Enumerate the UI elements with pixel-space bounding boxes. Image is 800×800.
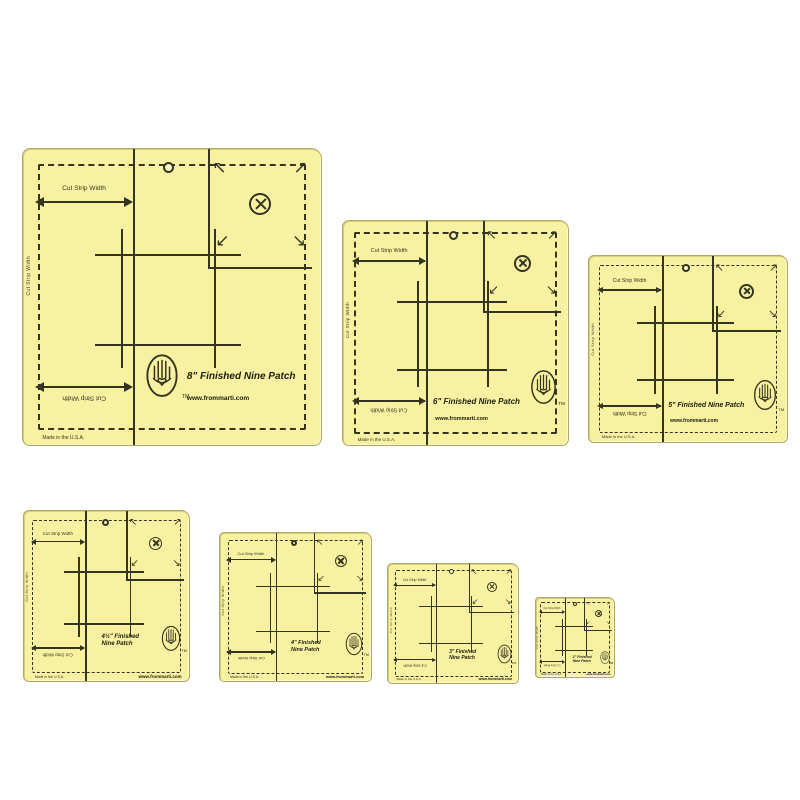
hang-hole-icon [449, 231, 458, 240]
template-title-line1: 6" Finished Nine Patch [433, 397, 520, 406]
cut-strip-width-arrow-top [394, 585, 435, 586]
trademark-text: TM [364, 653, 369, 657]
cut-strip-width-arrow-top [32, 541, 84, 543]
side-ruler-text: Cut Strip Width [591, 323, 595, 356]
cut-strip-width-label-top: Cut Strip Width [354, 249, 424, 255]
made-in-text: Made in the U.S.A. [35, 675, 64, 679]
nine-patch-grid-line-horizontal-2 [256, 631, 330, 633]
hand-logo-icon: TM [497, 644, 512, 664]
template-title-line2: Nine Patch [102, 641, 140, 648]
corner-arrow-sw-icon: ↙ [317, 576, 325, 583]
trademark-text: TM [779, 407, 785, 412]
side-ruler-text: Cut Strip Width [26, 572, 30, 602]
cut-strip-width-arrow-bottom [32, 647, 84, 649]
template-title-line2: Nine Patch [291, 647, 321, 653]
trademark-text: TM [512, 661, 516, 665]
corner-arrow-nw-icon: ↖ [715, 264, 724, 273]
hang-hole-icon [102, 519, 109, 526]
hand-logo-icon: TM [753, 379, 777, 411]
strip-seam-line-vertical [436, 564, 437, 683]
template-title-line2: Nine Patch [573, 659, 592, 663]
template-5-inch-nine-patch: Cut Strip Width Cut Strip Width Cut Stri… [588, 255, 788, 443]
template-title-line1: 4" Finished [291, 640, 321, 646]
corner-patch-line-horizontal [584, 630, 611, 631]
corner-patch-line-horizontal [712, 330, 781, 332]
corner-arrow-nw-icon: ↖ [586, 602, 590, 606]
cut-strip-width-arrow-top [37, 201, 131, 203]
template-3-inch-nine-patch: Cut Strip Width Cut Strip Width Cut Stri… [387, 563, 519, 684]
cut-strip-width-arrow-top [354, 260, 425, 262]
strip-seam-line-vertical [426, 221, 428, 445]
nine-patch-grid-line-vertical-1 [78, 557, 80, 637]
cut-strip-width-arrow-bottom [354, 400, 425, 402]
hang-hole-icon [291, 540, 297, 546]
corner-arrow-sw-icon: ↙ [488, 286, 499, 296]
hand-logo-icon: TM [145, 353, 179, 398]
nine-patch-grid-line-horizontal-1 [256, 586, 330, 588]
template-title: 4½" Finished Nine Patch [102, 634, 140, 648]
template-title-line1: 8" Finished Nine Patch [187, 371, 296, 383]
corner-patch-line-vertical [469, 564, 470, 612]
circle-x-icon [514, 255, 531, 272]
nine-patch-grid-line-horizontal-1 [64, 571, 145, 573]
website-text: www.frommarti.com [435, 416, 488, 422]
cut-strip-width-label-bottom: Cut Strip Width [32, 652, 83, 657]
website-text: www.frommarti.com [670, 418, 718, 424]
corner-arrow-ne-icon: ↗ [505, 569, 512, 575]
corner-patch-line-horizontal [208, 267, 312, 269]
circle-x-icon [335, 555, 347, 567]
corner-arrow-sw-icon: ↙ [586, 621, 590, 625]
corner-arrow-sw-icon: ↙ [130, 560, 138, 568]
side-ruler-text: Cut Strip Width [27, 256, 32, 296]
template-title: 8" Finished Nine Patch [187, 371, 296, 383]
template-title: 3" Finished Nine Patch [449, 650, 476, 662]
template-set-board: Cut Strip Width Cut Strip Width Cut Stri… [0, 0, 800, 800]
corner-patch-line-horizontal [314, 592, 367, 594]
nine-patch-grid-line-horizontal-1 [555, 626, 593, 627]
corner-arrow-sw-icon: ↙ [472, 599, 479, 605]
cut-strip-width-arrow-top [227, 559, 275, 561]
nine-patch-grid-line-horizontal-2 [419, 643, 483, 644]
corner-arrow-ne-icon: ↗ [173, 519, 181, 527]
cut-strip-width-arrow-bottom [394, 659, 435, 660]
circle-x-icon [149, 537, 162, 550]
website-text: www.frommarti.com [479, 677, 513, 681]
trademark-text: TM [182, 649, 187, 653]
strip-seam-line-vertical [85, 511, 87, 681]
corner-patch-line-vertical [314, 533, 316, 592]
cut-strip-width-label-top: Cut Strip Width [38, 186, 130, 193]
cut-strip-width-label-top: Cut Strip Width [32, 532, 83, 537]
cut-strip-width-label-bottom: Cut Strip Width [354, 406, 424, 412]
corner-arrow-ne-icon: ↗ [547, 231, 558, 241]
corner-arrow-se-icon: ↘ [292, 235, 306, 249]
website-text: www.frommarti.com [138, 674, 181, 679]
template-4half-inch-nine-patch: Cut Strip Width Cut Strip Width Cut Stri… [23, 510, 190, 682]
strip-seam-line-vertical [276, 533, 278, 681]
corner-arrow-se-icon: ↘ [606, 621, 610, 625]
corner-patch-line-horizontal [126, 579, 184, 581]
corner-arrow-se-icon: ↘ [768, 310, 777, 319]
corner-arrow-se-icon: ↘ [356, 576, 364, 583]
corner-arrow-se-icon: ↘ [505, 599, 512, 605]
template-title: 4" Finished Nine Patch [291, 640, 321, 653]
nine-patch-grid-line-horizontal-2 [95, 344, 241, 346]
nine-patch-grid-line-horizontal-1 [397, 301, 507, 303]
corner-arrow-nw-icon: ↖ [471, 569, 478, 575]
nine-patch-grid-line-horizontal-1 [419, 606, 483, 607]
cut-strip-width-label-bottom: Cut Strip Width [395, 663, 435, 667]
circle-x-icon [487, 582, 497, 592]
corner-arrow-ne-icon: ↗ [606, 602, 610, 606]
cut-strip-width-label-bottom: Cut Strip Width [228, 656, 275, 660]
template-title-line2: Nine Patch [449, 656, 476, 662]
cut-strip-width-label-top: Cut Strip Width [540, 608, 564, 611]
template-title-line1: 5" Finished Nine Patch [668, 402, 744, 410]
corner-arrow-sw-icon: ↙ [717, 310, 726, 319]
website-text: www.frommarti.com [326, 674, 364, 679]
corner-arrow-nw-icon: ↖ [129, 519, 137, 527]
cut-strip-width-label-bottom: Cut Strip Width [599, 410, 660, 415]
hand-logo-icon: TM [161, 625, 181, 652]
corner-patch-line-vertical [712, 256, 714, 330]
template-6-inch-nine-patch: Cut Strip Width Cut Strip Width Cut Stri… [342, 220, 569, 446]
cut-strip-width-label-bottom: Cut Strip Width [38, 394, 130, 401]
nine-patch-grid-line-horizontal-1 [95, 254, 241, 256]
side-ruler-text: Cut Strip Width [222, 586, 226, 616]
template-title: 5" Finished Nine Patch [668, 402, 744, 410]
cut-strip-width-arrow-bottom [599, 405, 661, 407]
corner-arrow-se-icon: ↘ [172, 560, 180, 568]
hand-logo-icon: TM [345, 632, 363, 656]
nine-patch-grid-line-horizontal-2 [637, 379, 734, 381]
trademark-text: TM [558, 401, 565, 406]
template-title-line1: 4½" Finished [102, 634, 140, 641]
made-in-text: Made in the U.S.A. [602, 434, 636, 439]
side-ruler-text: Cut Strip Width [390, 607, 393, 633]
side-ruler-text: Cut Strip Width [537, 626, 540, 649]
side-ruler-text: Cut Strip Width [346, 302, 351, 338]
strip-seam-line-vertical [662, 256, 664, 442]
corner-arrow-ne-icon: ↗ [769, 264, 778, 273]
corner-patch-line-vertical [483, 221, 485, 311]
hand-logo-icon: TM [530, 369, 557, 405]
cut-strip-width-arrow-top [540, 612, 565, 613]
cut-strip-width-label-top: Cut Strip Width [228, 552, 275, 556]
corner-arrow-ne-icon: ↗ [357, 540, 365, 547]
hand-logo-icon: TM [600, 651, 610, 664]
made-in-text: Made in the U.S.A. [396, 677, 421, 681]
nine-patch-grid-line-horizontal-2 [555, 650, 593, 651]
corner-arrow-sw-icon: ↙ [215, 235, 229, 249]
cut-strip-width-label-top: Cut Strip Width [395, 579, 435, 583]
template-title: 2" Finished Nine Patch [573, 655, 592, 663]
website-text: www.frommarti.com [187, 395, 249, 402]
corner-arrow-ne-icon: ↗ [293, 162, 307, 176]
corner-arrow-se-icon: ↘ [546, 286, 557, 296]
made-in-text: Made in the U.S.A. [42, 435, 84, 441]
made-in-text: Made in the U.S.A. [358, 437, 396, 442]
nine-patch-grid-line-vertical-1 [417, 281, 419, 386]
made-in-text: Made in the U.S.A. [230, 675, 259, 679]
corner-patch-line-vertical [208, 149, 210, 267]
template-8-inch-nine-patch: Cut Strip Width Cut Strip Width Cut Stri… [22, 148, 322, 446]
corner-patch-line-horizontal [469, 612, 515, 613]
template-2-inch-nine-patch: Cut Strip Width Cut Strip Width Cut Stri… [535, 597, 615, 678]
nine-patch-grid-line-vertical-1 [431, 596, 432, 652]
corner-patch-line-horizontal [483, 311, 562, 313]
strip-seam-line-vertical [133, 149, 135, 445]
cut-strip-width-arrow-bottom [227, 651, 275, 653]
cut-strip-width-arrow-bottom [37, 386, 131, 388]
corner-arrow-nw-icon: ↖ [316, 540, 324, 547]
nine-patch-grid-line-horizontal-1 [637, 322, 734, 324]
nine-patch-grid-line-horizontal-2 [397, 369, 507, 371]
template-4-inch-nine-patch: Cut Strip Width Cut Strip Width Cut Stri… [219, 532, 372, 682]
corner-arrow-nw-icon: ↖ [212, 162, 226, 176]
trademark-text: TM [609, 662, 613, 665]
corner-patch-line-vertical [126, 511, 128, 579]
nine-patch-grid-line-horizontal-2 [64, 623, 145, 625]
cut-strip-width-label-top: Cut Strip Width [599, 279, 660, 284]
nine-patch-grid-line-vertical-1 [121, 229, 123, 368]
website-text: www.frommarti.com [587, 673, 611, 676]
product-photo-canvas: { "page": { "background": "#ffffff" }, "… [0, 0, 800, 800]
hang-hole-icon [573, 602, 577, 606]
corner-arrow-nw-icon: ↖ [486, 231, 497, 241]
made-in-text: Made in the U.S.A. [541, 673, 562, 676]
cut-strip-width-arrow-top [599, 289, 661, 291]
template-title: 6" Finished Nine Patch [433, 397, 520, 406]
